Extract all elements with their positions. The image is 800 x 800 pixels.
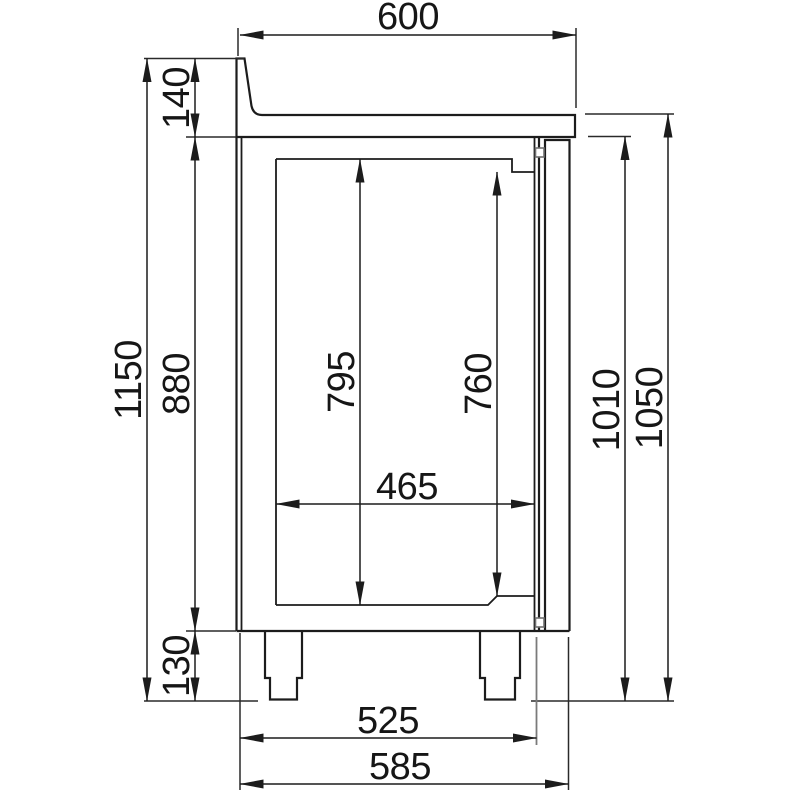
dimension-worktop-height-1050: 1050 bbox=[629, 114, 671, 701]
worktop-with-backsplash bbox=[237, 59, 576, 138]
dim-label-585: 585 bbox=[369, 746, 431, 788]
technical-drawing-canvas: 600 140 1150 880 795 760 465 101 bbox=[0, 0, 800, 800]
dimension-body-depth-525: 525 bbox=[240, 700, 537, 742]
dimension-body-height-880: 880 bbox=[156, 137, 198, 631]
cabinet-outline bbox=[237, 59, 576, 700]
dimension-drawing: 600 140 1150 880 795 760 465 101 bbox=[0, 0, 800, 800]
left-foot bbox=[265, 631, 302, 700]
dim-label-525: 525 bbox=[357, 700, 419, 742]
dim-label-880: 880 bbox=[156, 353, 198, 415]
dim-label-1050: 1050 bbox=[629, 367, 671, 450]
dimensions: 600 140 1150 880 795 760 465 101 bbox=[108, 0, 671, 788]
dimension-overall-depth-585: 585 bbox=[240, 746, 569, 788]
dim-label-600: 600 bbox=[377, 0, 439, 38]
dim-label-795: 795 bbox=[321, 351, 363, 413]
compartment-bottom-edge bbox=[276, 596, 535, 605]
dimension-under-worktop-height-1010: 1010 bbox=[586, 137, 628, 702]
door-outline bbox=[545, 140, 570, 631]
dim-label-465: 465 bbox=[376, 466, 438, 508]
dim-label-1010: 1010 bbox=[586, 369, 628, 452]
door-hinge-bottom-icon bbox=[536, 618, 545, 627]
door-panel bbox=[536, 140, 570, 631]
dimension-door-opening-height-760: 760 bbox=[458, 172, 500, 596]
dim-label-130: 130 bbox=[156, 635, 198, 697]
right-foot bbox=[480, 631, 520, 700]
dimension-backsplash-height-140: 140 bbox=[156, 59, 198, 138]
dimension-inner-height-795: 795 bbox=[321, 159, 363, 605]
dimension-top-depth-600: 600 bbox=[240, 0, 576, 38]
dim-label-1150: 1150 bbox=[108, 340, 150, 420]
dimension-overall-height-1150: 1150 bbox=[108, 59, 150, 702]
dimension-leg-height-130: 130 bbox=[156, 631, 198, 701]
dim-label-140: 140 bbox=[156, 67, 198, 129]
compartment-top-edge bbox=[276, 159, 535, 172]
door-hinge-top-icon bbox=[536, 148, 545, 157]
dim-label-760: 760 bbox=[458, 353, 500, 415]
dimension-inner-depth-465: 465 bbox=[276, 466, 535, 508]
